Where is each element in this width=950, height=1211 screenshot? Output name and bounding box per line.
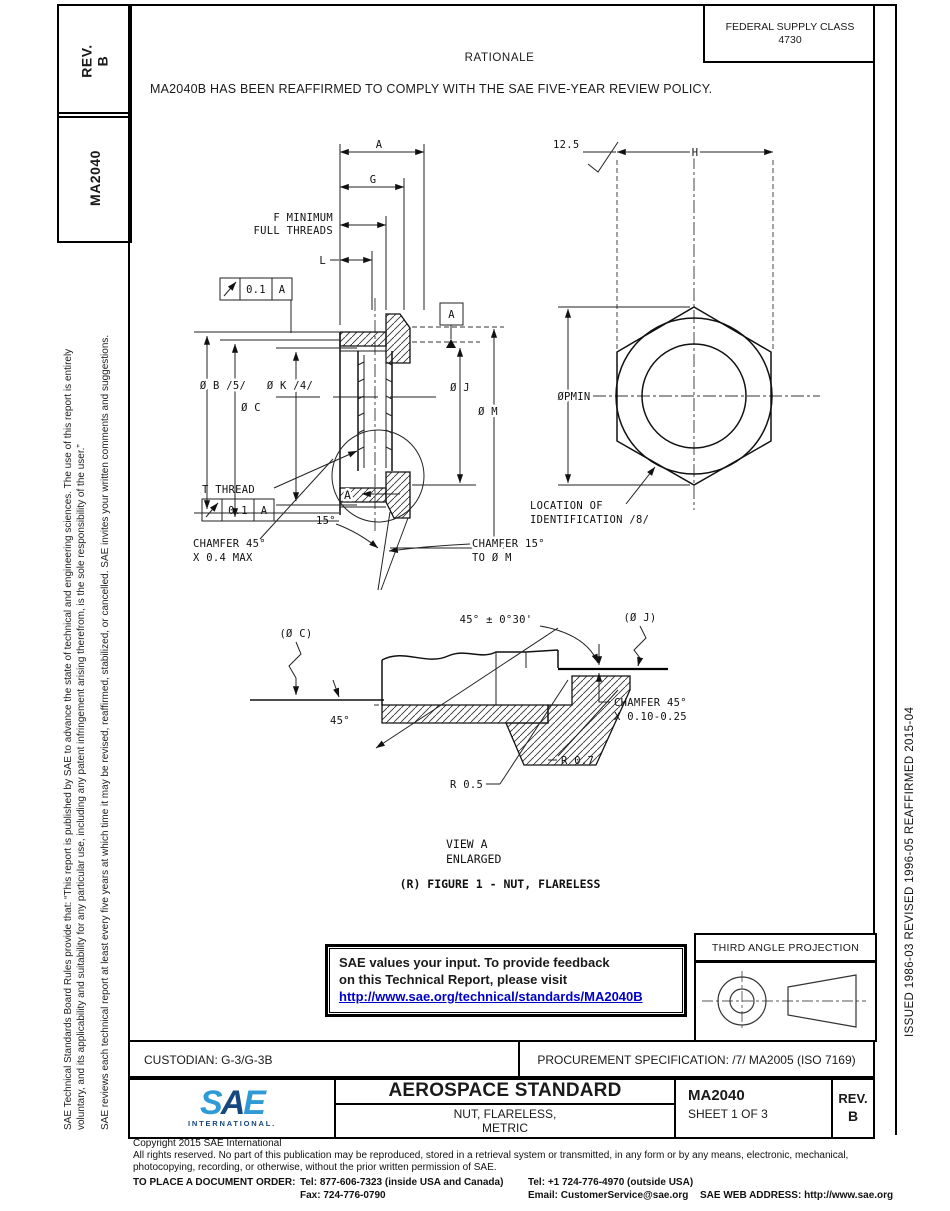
va-chamfer-label-1: CHAMFER 45° — [614, 697, 687, 709]
dia-j-label: Ø J — [450, 382, 470, 394]
custodian-row: CUSTODIAN: G-3/G-3B PROCUREMENT SPECIFIC… — [128, 1040, 875, 1080]
tel-outside: Tel: +1 724-776-4970 (outside USA) — [528, 1177, 693, 1189]
f-minimum-label: F MINIMUM — [273, 212, 333, 224]
fsc-label: FEDERAL SUPPLY CLASS — [726, 21, 855, 34]
feedback-line-2: on this Technical Report, please visit — [339, 971, 673, 988]
svg-text:12.5: 12.5 — [553, 139, 580, 151]
procurement-cell: PROCUREMENT SPECIFICATION: /7/ MA2005 (I… — [520, 1042, 873, 1078]
dim-a: A — [376, 139, 383, 151]
side-doc-number: MA2040 — [86, 150, 102, 206]
feedback-link[interactable]: http://www.sae.org/technical/standards/M… — [339, 989, 643, 1004]
datum-a-flag: A — [440, 303, 463, 348]
chamfer-45-label-2: X 0.4 MAX — [193, 552, 253, 564]
fax: Fax: 724-776-0790 — [300, 1190, 386, 1202]
va-r07-label: R 0.7 — [561, 755, 594, 767]
rationale-text: MA2040B HAS BEEN REAFFIRMED TO COMPLY WI… — [150, 82, 712, 96]
view-a-detail: (Ø C) 45° 45° ± 0°30' (Ø J) — [250, 612, 687, 891]
sae-logo-subtext: INTERNATIONAL. — [188, 1119, 276, 1128]
third-angle-projection-icon — [696, 963, 871, 1037]
doc-type-title: AEROSPACE STANDARD — [336, 1078, 674, 1105]
dia-b-label: Ø B /5/ — [200, 380, 246, 392]
va-chamfer-label-2: X 0.10-0.25 — [614, 711, 687, 723]
order-label: TO PLACE A DOCUMENT ORDER: — [133, 1177, 295, 1189]
document-page: FEDERAL SUPPLY CLASS 4730 REV. B MA2040 … — [0, 0, 950, 1211]
doc-title-line-2: METRIC — [482, 1121, 528, 1135]
side-rev-box: REV. B — [57, 4, 132, 118]
angle-15-label: 15° — [316, 515, 336, 527]
web-address: SAE WEB ADDRESS: http://www.sae.org — [700, 1190, 893, 1202]
va-angle-label: 45° ± 0°30' — [460, 614, 533, 626]
custodian-cell: CUSTODIAN: G-3/G-3B — [130, 1042, 520, 1078]
doc-number: MA2040 — [688, 1087, 831, 1104]
dim-l: L — [319, 255, 326, 267]
side-rev-title: REV. — [78, 44, 94, 77]
third-angle-projection-box: THIRD ANGLE PROJECTION — [694, 933, 877, 1042]
title-block: SAE INTERNATIONAL. AEROSPACE STANDARD NU… — [128, 1076, 875, 1139]
svg-text:A: A — [279, 284, 286, 296]
side-doc-box: MA2040 — [57, 112, 132, 243]
surface-finish-symbol: 12.5 — [553, 139, 618, 172]
section-view: A A G F MINIMUM FULL THREADS L 0. — [193, 139, 545, 590]
feedback-box: SAE values your input. To provide feedba… — [325, 944, 687, 1017]
location-id-label-1: LOCATION OF — [530, 500, 603, 512]
dim-g: G — [370, 174, 377, 186]
va-45-label: 45° — [330, 715, 350, 727]
svg-text:0.1: 0.1 — [228, 505, 248, 517]
contact-block: TO PLACE A DOCUMENT ORDER: Tel: 877-606-… — [133, 1175, 890, 1203]
right-margin-top-rule — [873, 4, 897, 6]
rights-text: All rights reserved. No part of this pub… — [133, 1150, 890, 1174]
svg-text:A: A — [261, 505, 268, 517]
email: Email: CustomerService@sae.org — [528, 1190, 688, 1202]
runout-icon — [206, 503, 218, 517]
chamfer-15-label-1: CHAMFER 15° — [472, 538, 545, 550]
feature-control-frame-1: 0.1 A — [220, 278, 292, 333]
left-disclaimer-1: SAE Technical Standards Board Rules prov… — [62, 258, 88, 1130]
dia-k-label: Ø K /4/ — [267, 380, 313, 392]
tel-inside: Tel: 877-606-7323 (inside USA and Canada… — [300, 1177, 503, 1189]
full-threads-label: FULL THREADS — [254, 225, 333, 237]
view-a-arrow-label: A — [344, 488, 351, 502]
t-thread-label: T THREAD — [202, 484, 255, 496]
va-dia-c-label: (Ø C) — [279, 628, 312, 640]
figure-1-drawing: A A G F MINIMUM FULL THREADS L 0. — [128, 120, 873, 920]
copyright-line: Copyright 2015 SAE International — [133, 1138, 890, 1150]
va-dia-j-label: (Ø J) — [623, 612, 656, 624]
dia-p-min-label: ØPMIN — [557, 391, 590, 403]
feedback-line-1: SAE values your input. To provide feedba… — [339, 954, 673, 971]
rev-cell: REV. B — [833, 1078, 873, 1137]
svg-text:A: A — [448, 309, 455, 321]
doc-title-line-1: NUT, FLARELESS, — [454, 1107, 557, 1121]
dia-m-label: Ø M — [478, 406, 498, 418]
third-angle-projection-title: THIRD ANGLE PROJECTION — [696, 935, 875, 963]
runout-icon — [224, 282, 236, 296]
revision-history: ISSUED 1986-03 REVISED 1996-05 REAFFIRME… — [878, 557, 943, 1037]
side-rev-value: B — [94, 44, 110, 77]
legal-block: Copyright 2015 SAE International All rig… — [133, 1138, 890, 1203]
va-r05-label: R 0.5 — [450, 779, 483, 791]
sheet-number: SHEET 1 OF 3 — [688, 1107, 831, 1121]
dia-c-label: Ø C — [241, 402, 261, 414]
chamfer-15-label-2: TO Ø M — [472, 552, 512, 564]
sae-logo: SAE INTERNATIONAL. — [130, 1078, 336, 1137]
chamfer-45-label-1: CHAMFER 45° — [193, 538, 266, 550]
rationale-title: RATIONALE — [128, 52, 871, 64]
left-disclaimer-2: SAE reviews each technical report at lea… — [99, 258, 112, 1130]
hex-end-view: H 12.5 ØPMIN LOCATION OF IDENTIFICATION … — [530, 139, 820, 526]
view-a-caption: VIEW A — [446, 837, 488, 851]
figure-caption: (R) FIGURE 1 - NUT, FLARELESS — [400, 877, 601, 891]
fsc-value: 4730 — [778, 34, 801, 47]
dim-h-label: H — [692, 147, 699, 159]
svg-text:0.1: 0.1 — [246, 284, 266, 296]
view-a-enlarged: ENLARGED — [446, 852, 501, 866]
location-id-label-2: IDENTIFICATION /8/ — [530, 514, 649, 526]
feature-control-frame-2: 0.1 A — [202, 499, 274, 521]
